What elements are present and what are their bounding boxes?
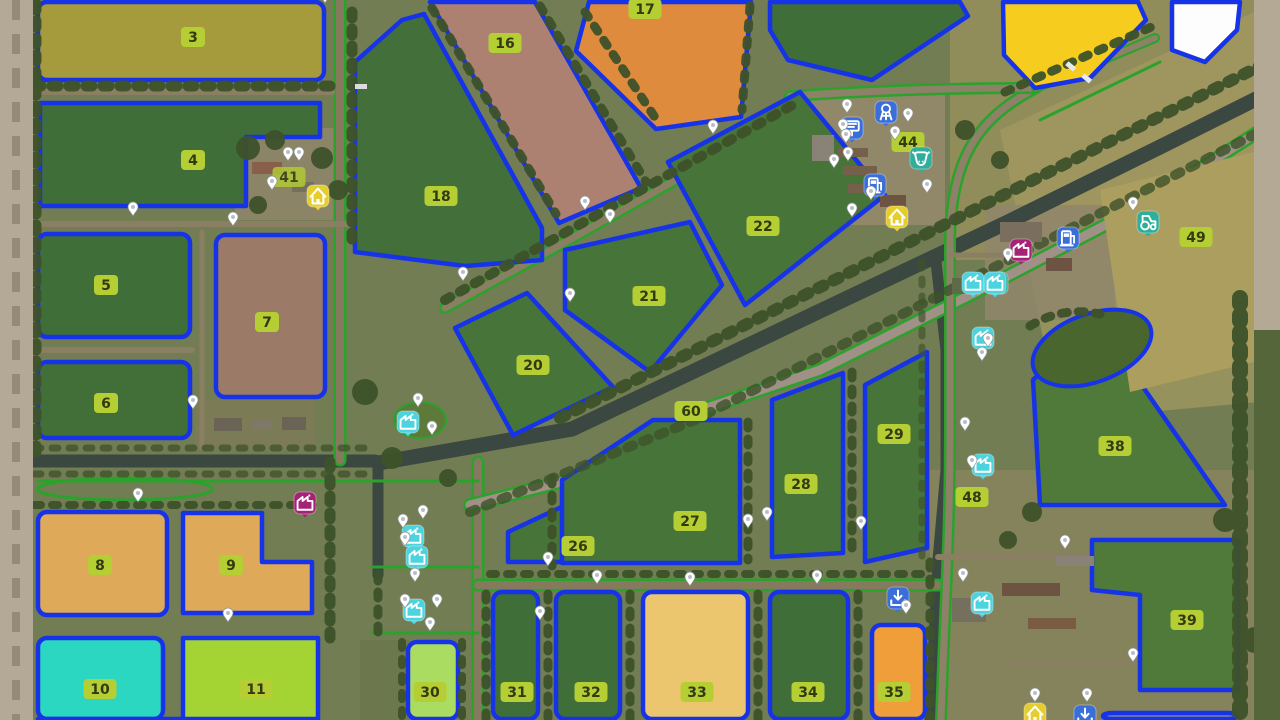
farmhouse-icon[interactable] xyxy=(886,206,908,232)
field-label-41: 41 xyxy=(273,167,306,187)
svg-text:7: 7 xyxy=(262,315,272,331)
svg-text:60: 60 xyxy=(681,404,701,420)
field-label-22: 22 xyxy=(747,216,780,236)
field-label-20: 20 xyxy=(517,355,550,375)
svg-text:35: 35 xyxy=(884,685,903,701)
field-label-32: 32 xyxy=(575,682,608,702)
field-label-34: 34 xyxy=(792,682,825,702)
svg-text:48: 48 xyxy=(962,490,981,506)
production-icon[interactable] xyxy=(962,272,984,298)
production-point-icon[interactable] xyxy=(294,492,316,518)
svg-text:8: 8 xyxy=(95,558,105,574)
field-label-38: 38 xyxy=(1099,436,1132,456)
svg-text:31: 31 xyxy=(507,685,526,701)
charging-station-icon[interactable] xyxy=(1057,227,1079,253)
farmhouse-icon[interactable] xyxy=(1024,703,1046,720)
field-28[interactable] xyxy=(772,373,843,557)
production-icon[interactable] xyxy=(984,272,1006,298)
water-tower-icon[interactable] xyxy=(875,101,897,127)
cow-pasture-icon[interactable] xyxy=(910,147,932,173)
svg-text:29: 29 xyxy=(884,427,903,443)
field-label-33: 33 xyxy=(681,682,714,702)
production-icon[interactable] xyxy=(406,546,428,572)
field-label-10: 10 xyxy=(84,679,117,699)
map-view[interactable]: 3456789101116171820212226272829303132333… xyxy=(0,0,1280,720)
field-label-6: 6 xyxy=(94,393,118,413)
field-label-35: 35 xyxy=(878,682,911,702)
svg-text:11: 11 xyxy=(246,682,265,698)
field-label-28: 28 xyxy=(785,474,818,494)
svg-text:6: 6 xyxy=(101,396,111,412)
field-30[interactable] xyxy=(408,642,458,719)
field-label-4: 4 xyxy=(181,150,205,170)
field-label-26: 26 xyxy=(562,536,595,556)
field-label-39: 39 xyxy=(1171,610,1204,630)
sell-point-icon[interactable] xyxy=(1074,705,1096,720)
field-label-21: 21 xyxy=(633,286,666,306)
svg-text:39: 39 xyxy=(1177,613,1196,629)
svg-text:16: 16 xyxy=(495,36,514,52)
field-label-29: 29 xyxy=(878,424,911,444)
field-label-18: 18 xyxy=(425,186,458,206)
svg-text:22: 22 xyxy=(753,219,772,235)
field-label-7: 7 xyxy=(255,312,279,332)
field-10[interactable] xyxy=(38,638,163,719)
field-label-30: 30 xyxy=(414,682,447,702)
production-point-icon[interactable] xyxy=(1010,239,1032,265)
svg-text:20: 20 xyxy=(523,358,543,374)
field-label-60: 60 xyxy=(675,401,708,421)
production-icon[interactable] xyxy=(971,592,993,618)
field-unnumbered[interactable] xyxy=(1103,713,1237,719)
farmhouse-icon[interactable] xyxy=(307,185,329,211)
svg-text:27: 27 xyxy=(680,514,699,530)
svg-text:17: 17 xyxy=(635,2,654,18)
field-29[interactable] xyxy=(865,352,927,562)
field-label-9: 9 xyxy=(219,555,243,575)
svg-text:21: 21 xyxy=(639,289,658,305)
svg-text:33: 33 xyxy=(687,685,706,701)
svg-text:49: 49 xyxy=(1186,230,1205,246)
field-label-49: 49 xyxy=(1180,227,1213,247)
field-35[interactable] xyxy=(872,625,925,719)
field-label-17: 17 xyxy=(629,0,662,19)
svg-text:38: 38 xyxy=(1105,439,1124,455)
svg-text:5: 5 xyxy=(101,278,111,294)
field-label-5: 5 xyxy=(94,275,118,295)
vehicle-shop-icon[interactable] xyxy=(1137,211,1159,237)
field-label-16: 16 xyxy=(489,33,522,53)
field-label-11: 11 xyxy=(240,679,273,699)
farm-shop-icon[interactable] xyxy=(864,174,886,200)
svg-text:18: 18 xyxy=(431,189,450,205)
field-label-27: 27 xyxy=(674,511,707,531)
svg-text:10: 10 xyxy=(90,682,110,698)
svg-text:26: 26 xyxy=(568,539,587,555)
svg-text:3: 3 xyxy=(188,30,198,46)
greenhouse-icon[interactable] xyxy=(397,411,419,437)
svg-text:34: 34 xyxy=(798,685,818,701)
field-label-3: 3 xyxy=(181,27,205,47)
svg-text:32: 32 xyxy=(581,685,600,701)
field-label-8: 8 xyxy=(88,555,112,575)
field-label-31: 31 xyxy=(501,682,534,702)
svg-text:9: 9 xyxy=(226,558,236,574)
svg-text:4: 4 xyxy=(188,153,198,169)
svg-text:41: 41 xyxy=(279,170,298,186)
map-screen: 3456789101116171820212226272829303132333… xyxy=(0,0,1280,720)
svg-text:28: 28 xyxy=(791,477,810,493)
svg-text:30: 30 xyxy=(420,685,440,701)
field-label-48: 48 xyxy=(956,487,989,507)
